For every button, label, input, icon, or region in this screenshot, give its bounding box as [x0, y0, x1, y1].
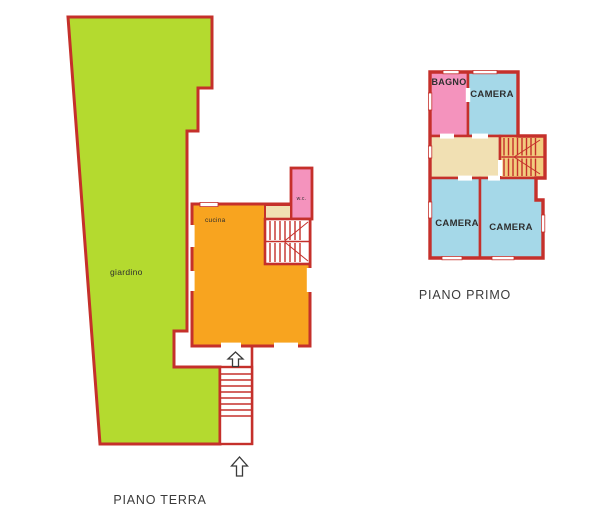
first-left-window-2	[428, 146, 431, 158]
garden-label: giardino	[110, 267, 143, 277]
entrance-arrow-icon-lower	[232, 457, 248, 476]
bedroom-bottom-right-room	[480, 178, 543, 258]
kitchen-right-door	[307, 268, 312, 292]
ground-floor-plan: giardino cucina w.c. PIANO TERRA	[68, 17, 312, 507]
first-bottom-window-2	[492, 256, 514, 259]
kitchen-top-window	[200, 202, 218, 206]
floor-plan-page: giardino cucina w.c. PIANO TERRA	[0, 0, 614, 525]
wc-label: w.c.	[297, 196, 307, 202]
kitchen-lobby	[265, 205, 291, 219]
bathroom-label: BAGNO	[432, 77, 467, 87]
bedroom-bottom-left-door	[458, 176, 472, 181]
first-floor-title: PIANO PRIMO	[419, 288, 511, 302]
kitchen-label: cucina	[205, 217, 226, 224]
internal-stairs-ground	[265, 219, 310, 264]
entrance-arrow-icon-upper	[228, 352, 243, 367]
first-bottom-window-1	[442, 256, 462, 259]
first-floor-plan: BAGNO CAMERA CAMERA CAMERA PIANO PRIMO	[419, 70, 545, 302]
first-right-window	[541, 215, 544, 232]
kitchen-bottom-door-2	[274, 343, 298, 349]
bedroom-bottom-left-label: CAMERA	[435, 218, 479, 229]
bedroom-top-label: CAMERA	[470, 89, 514, 100]
first-left-window-1	[428, 93, 431, 110]
kitchen-left-door-1	[190, 225, 194, 247]
first-left-window-3	[428, 202, 431, 218]
first-top-window-2	[473, 70, 497, 73]
floor-plan-drawing: giardino cucina w.c. PIANO TERRA	[0, 0, 614, 525]
internal-stairs-first	[500, 136, 545, 178]
external-entry-stairs	[220, 367, 252, 444]
kitchen-left-door-2	[190, 271, 194, 291]
bedroom-top-room	[468, 72, 518, 136]
ground-floor-title: PIANO TERRA	[113, 493, 206, 507]
kitchen-bottom-door-1	[221, 343, 241, 349]
stairs-entry-opening	[498, 160, 502, 176]
bedroom-top-door	[472, 134, 488, 139]
bedroom-bottom-right-door	[488, 176, 500, 181]
first-top-window-1	[443, 70, 459, 73]
wc-room	[291, 168, 312, 219]
first-floor-corridor	[430, 136, 500, 178]
bathroom-door	[440, 134, 454, 139]
bedroom-bottom-right-label: CAMERA	[489, 222, 533, 233]
